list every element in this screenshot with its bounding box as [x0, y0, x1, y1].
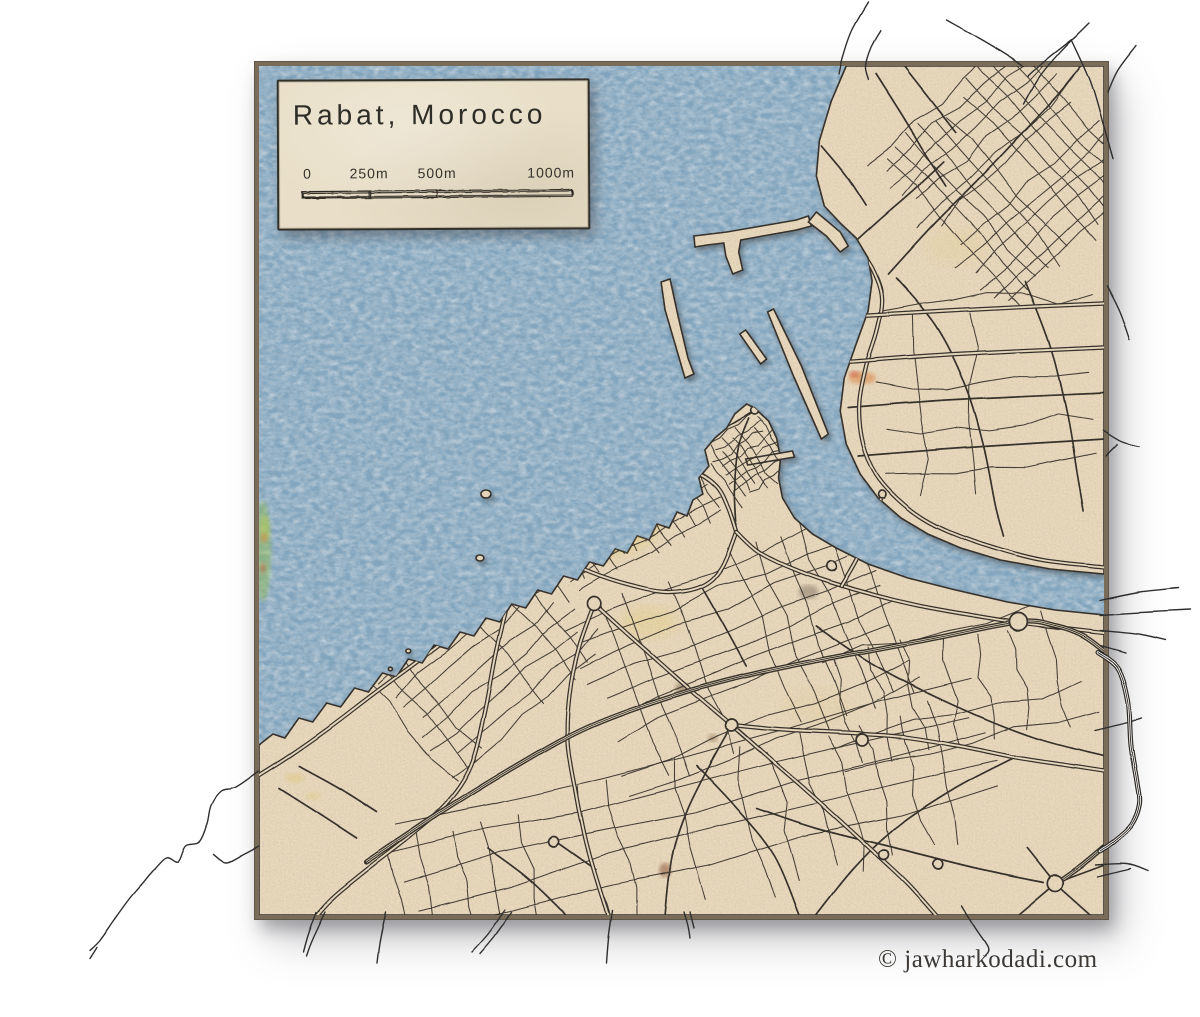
scale-tick-500m: 500m	[418, 165, 457, 181]
scale-bar-graphic	[299, 184, 577, 205]
scale-tick-250m: 250m	[350, 165, 389, 181]
map-title: Rabat, Morocco	[293, 99, 547, 132]
attribution: © jawharkodadi.com	[878, 946, 1098, 974]
scale-bar: 0 250m 500m 1000m	[299, 164, 577, 211]
scale-tick-0: 0	[303, 166, 312, 182]
map-panel: Rabat, Morocco 0 250m 500m 1000m	[255, 62, 1108, 919]
map-title-card: Rabat, Morocco 0 250m 500m 1000m	[277, 78, 591, 230]
page-background: { "page": { "background_color": "#ffffff…	[0, 0, 1200, 1017]
scale-tick-1000m: 1000m	[527, 164, 575, 180]
